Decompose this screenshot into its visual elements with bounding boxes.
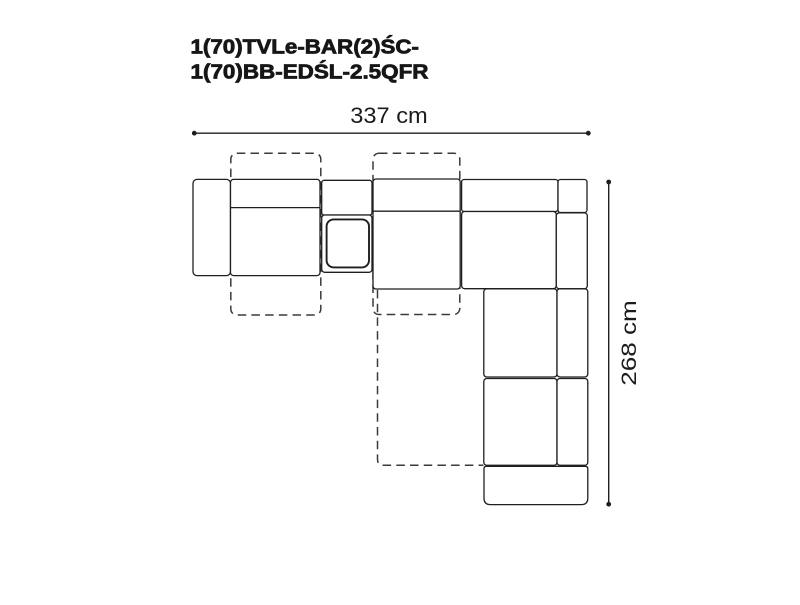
svg-text:1(70)TVLe-BAR(2)ŚC-: 1(70)TVLe-BAR(2)ŚC- [191,34,420,58]
svg-text:337 cm: 337 cm [350,103,428,128]
svg-text:1(70)BB-EDŚL-2.5QFR: 1(70)BB-EDŚL-2.5QFR [191,60,430,84]
svg-text:268 cm: 268 cm [618,300,641,386]
